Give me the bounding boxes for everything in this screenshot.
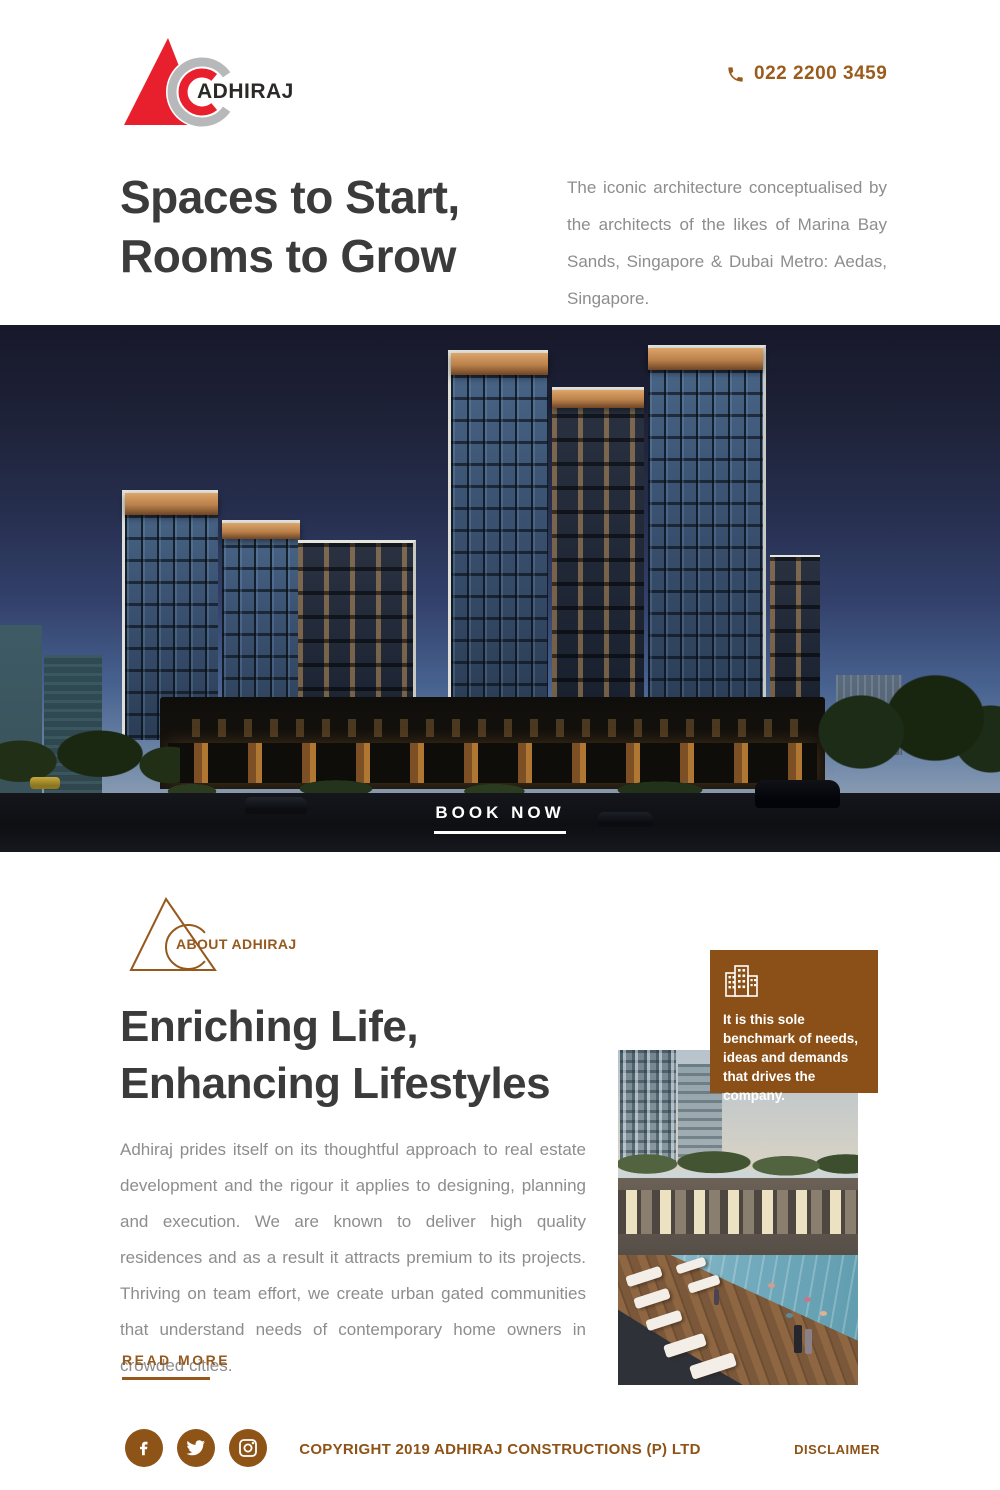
swimmer bbox=[820, 1311, 827, 1316]
trees-right bbox=[815, 655, 1000, 795]
pool-clubhouse-wall bbox=[618, 1178, 858, 1258]
sun-lounger bbox=[625, 1266, 663, 1288]
swimmer bbox=[786, 1313, 793, 1318]
read-more-label: READ MORE bbox=[122, 1352, 230, 1368]
about-paragraph: Adhiraj prides itself on its thoughtful … bbox=[120, 1132, 586, 1384]
about-title: Enriching Life, Enhancing Lifestyles bbox=[120, 998, 550, 1112]
book-now-label: BOOK NOW bbox=[0, 803, 1000, 823]
tower-center-2 bbox=[552, 387, 644, 717]
sun-lounger bbox=[633, 1288, 671, 1310]
person-walking bbox=[805, 1329, 812, 1354]
hero-title-line1: Spaces to Start, bbox=[120, 168, 460, 227]
hero-description: The iconic architecture conceptualised b… bbox=[567, 169, 887, 317]
phone-number: 022 2200 3459 bbox=[754, 63, 887, 85]
adhiraj-logo[interactable]: ADHIRAJ bbox=[124, 30, 414, 130]
person-standing bbox=[714, 1289, 719, 1305]
phone-icon bbox=[726, 65, 745, 84]
hero-building-image bbox=[0, 325, 1000, 852]
lit-windows-row bbox=[618, 1190, 858, 1234]
read-more-link[interactable]: READ MORE bbox=[122, 1352, 230, 1380]
about-section-label: ABOUT ADHIRAJ bbox=[176, 936, 297, 952]
pool-greenery bbox=[618, 1146, 858, 1182]
about-title-line2: Enhancing Lifestyles bbox=[120, 1055, 550, 1112]
hero-title-line2: Rooms to Grow bbox=[120, 227, 460, 286]
book-now-underline bbox=[434, 831, 566, 834]
pool-lower-area bbox=[618, 1255, 858, 1385]
person-walking bbox=[794, 1325, 802, 1353]
disclaimer-link[interactable]: DISCLAIMER bbox=[794, 1442, 880, 1457]
brand-name: ADHIRAJ bbox=[197, 80, 294, 104]
tower-center-1 bbox=[448, 350, 548, 710]
swimmer bbox=[768, 1283, 775, 1288]
retail-podium bbox=[160, 697, 825, 789]
benchmark-callout-card: It is this sole benchmark of needs, idea… bbox=[710, 950, 878, 1093]
triangle-c-outline-icon bbox=[122, 893, 232, 973]
read-more-underline bbox=[122, 1377, 210, 1380]
swimmer bbox=[804, 1297, 811, 1302]
hero-title: Spaces to Start, Rooms to Grow bbox=[120, 168, 460, 286]
sun-lounger bbox=[645, 1310, 683, 1332]
buildings-icon bbox=[723, 962, 759, 998]
taxi bbox=[30, 777, 60, 789]
phone-number-link[interactable]: 022 2200 3459 bbox=[726, 63, 887, 85]
tower-center-3 bbox=[648, 345, 766, 715]
about-title-line1: Enriching Life, bbox=[120, 998, 550, 1055]
tower-right-small bbox=[770, 555, 820, 720]
about-logo-outline bbox=[122, 893, 232, 973]
book-now-button[interactable]: BOOK NOW bbox=[0, 803, 1000, 834]
callout-text: It is this sole benchmark of needs, idea… bbox=[723, 1010, 865, 1105]
